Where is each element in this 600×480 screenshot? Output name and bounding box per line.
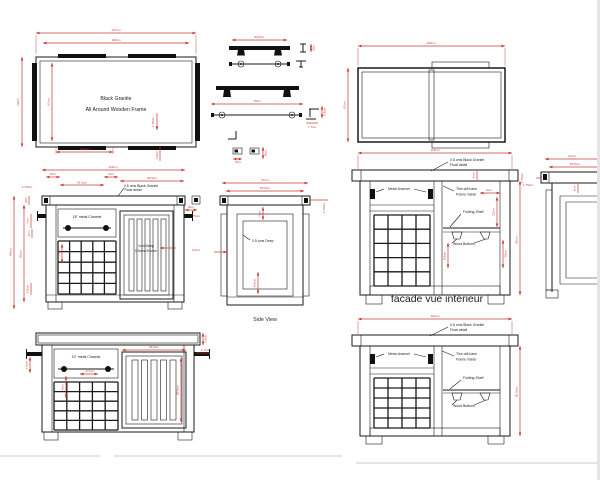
front-channel-label: 18" metal Channel [73, 215, 102, 219]
front-height-inner-dim: 80cm [19, 250, 23, 258]
front-25-dim: 2.5cm [26, 284, 30, 293]
blueprint-drawing: 127cm 115cm 79cm 67cm Black Granite All … [0, 0, 600, 480]
plan-edge-dim: 4.8cm [155, 150, 159, 159]
plan-height-outer: 79cm [16, 98, 20, 106]
front-grid-dim: 14cm [57, 249, 61, 257]
facade-bottom-metal-channel-label: Metal channel [388, 352, 410, 356]
front-8cm-dim: 8cm [50, 172, 56, 176]
facade-bottom-frame-note1: This will have [456, 352, 477, 356]
blueprint-sheet: 127cm 115cm 79cm 67cm Black Granite All … [0, 0, 600, 480]
facade-bottom-width-dim: 115cm [430, 314, 439, 318]
handle-short-bar [229, 46, 290, 50]
front-4cm-b-dim: 4cm [27, 230, 31, 236]
front-bottom-17-dim: 1.7cm [201, 348, 210, 352]
facade-mid-frame-note2: Frame inside [456, 193, 476, 197]
facade-bottom-frame-note2: Frame inside [456, 358, 476, 362]
plan-left-rail [32, 63, 37, 141]
facade-mid-width-dim: 115cm [430, 148, 439, 152]
handle-long-depth: 7.7cm [308, 125, 317, 129]
plan-width-inner: 115cm [111, 38, 120, 42]
side-width-outer-dim: 67cm [261, 178, 269, 182]
plan-width-outer: 127cm [111, 28, 121, 32]
front-bottom-555-dim: 55.5cm [176, 385, 180, 396]
side-view-caption: Side View [253, 317, 277, 323]
side-width-inner-dim: 63.5cm [260, 186, 271, 190]
facade-bottom-folding-shelf-label: Folding Shelf [463, 376, 483, 380]
front-granite-note2: Float detail [124, 188, 141, 192]
bracket-gap-dim: 8cm [264, 150, 268, 156]
plan-material-line1: Black Granite [100, 96, 131, 102]
plan-material-line2: All Around Wooden Frame [86, 107, 147, 113]
facade-caption: facade vue intérieur [391, 293, 484, 305]
front-175-left-dim: 1.75cm [22, 185, 33, 189]
facade-mid-folding-shelf-label: Folding Shelf [463, 210, 483, 214]
facade-mid-175-dim: 1.75cm [520, 173, 524, 184]
facade-mid-note2: Float detail [450, 163, 467, 167]
front-bottom-57-dim: 5.7cm [86, 369, 95, 373]
partial-width-inner-dim: 63.5cm [570, 162, 581, 166]
front-groove-note2: 0.5cm Groove [135, 249, 157, 253]
front-width-dim: 115cm [108, 165, 117, 169]
side-top-dim: 7cm [258, 211, 262, 217]
handle-long-bar [216, 86, 299, 90]
facade-mid-metal-channel-label: Metal channel [388, 187, 410, 191]
facade-bottom-height-dim: 80.5cm [515, 387, 519, 398]
side-deep-label: 0.5 cms Deep [252, 239, 274, 243]
facade-mid-3cm-dim: 3cm [472, 172, 476, 178]
front-bottom-channel-label: 10" metal Channel [72, 355, 101, 359]
partial-3cm-dim: 3cm [573, 185, 577, 191]
handle-long-length: 70cm [253, 99, 261, 103]
facade-mid-20cm-dim: 20cm [492, 208, 496, 216]
front-bottom-495-dim: 49.5cm [149, 345, 160, 349]
bracket-width-dim: 3cm [235, 160, 241, 164]
front-door-width-dim: 49.5cm [147, 176, 158, 180]
side-right-dim: 1.75cm [322, 203, 326, 214]
facade-mid-wood-buttons-label: Wood Buttons [453, 242, 475, 246]
front-bottom-8-dim: 8cm [61, 384, 65, 390]
facade-bottom-wood-buttons-label: Wood Buttons [453, 404, 475, 408]
front-3cm-dim: 3cm [24, 197, 28, 203]
side-left-dim: 2.5cm [192, 248, 201, 252]
front-4cm-dim: 4cm [108, 172, 114, 176]
facade-mid-frame-note1: This will have [456, 187, 477, 191]
plan-height-inner: 67cm [47, 98, 51, 106]
front-8cm-right-dim: 8cm [188, 205, 194, 209]
front-groove-note1: 1cm Deep [138, 244, 154, 248]
partial-175-dim: 1.75cm [523, 183, 534, 187]
plan-thickness-dim: 1.75cm [151, 117, 155, 128]
facade-bottom-note2: Float detail [450, 328, 467, 332]
partial-width-outer-dim: 67cm [568, 154, 576, 158]
panel-height-dim: 87cm [343, 101, 347, 109]
plan-right-rail [195, 63, 200, 141]
handle-short-length: 40.5cm [254, 35, 265, 39]
facade-mid-85-dim: 8.5cm [443, 251, 447, 260]
front-bottom-18-dim: 1.8cm [204, 334, 208, 343]
facade-mid-note1: 0.5 cms Black Granite [450, 158, 484, 162]
side-bottom-dim: 8.5cm [253, 278, 257, 287]
front-7cm-dim: 7cm [26, 218, 30, 224]
panel-width-dim: 115cm [426, 41, 435, 45]
facade-bottom-note1: 0.5 cms Black Granite [450, 323, 484, 327]
facade-mid-23cm-dim: 23cm [504, 250, 508, 258]
handle-short-height: 3cm [312, 45, 316, 51]
plan-bottom-dim: 48.5cm [80, 147, 91, 151]
front-415-dim: 41.5cm [77, 181, 88, 185]
handle-long-rise: 1.8cm [323, 107, 327, 116]
front-bottom-45-dim: 4.5cm [25, 360, 29, 369]
facade-mid-height-dim: 80cm [515, 236, 519, 244]
facade-mid-9cm-dim: 9cm [486, 188, 492, 192]
front-height-outer-dim: 86cm [9, 248, 13, 256]
